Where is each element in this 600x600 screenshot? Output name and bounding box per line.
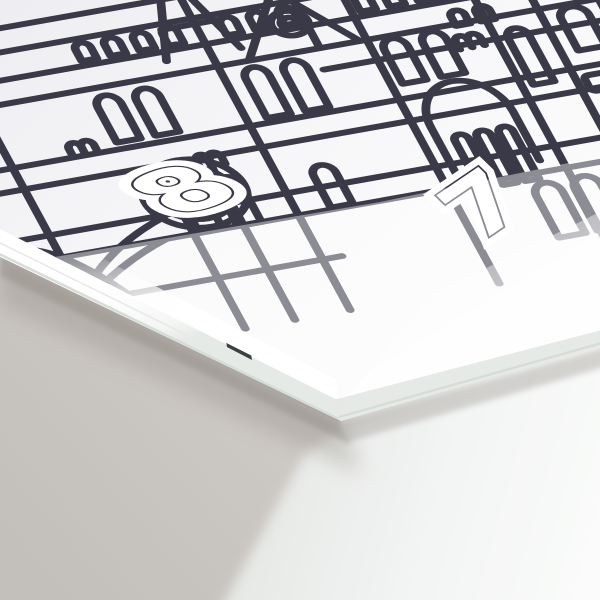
- mockup-photo: 8 7 8 7: [0, 0, 600, 600]
- scene-svg: 8 7 8 7: [0, 0, 600, 600]
